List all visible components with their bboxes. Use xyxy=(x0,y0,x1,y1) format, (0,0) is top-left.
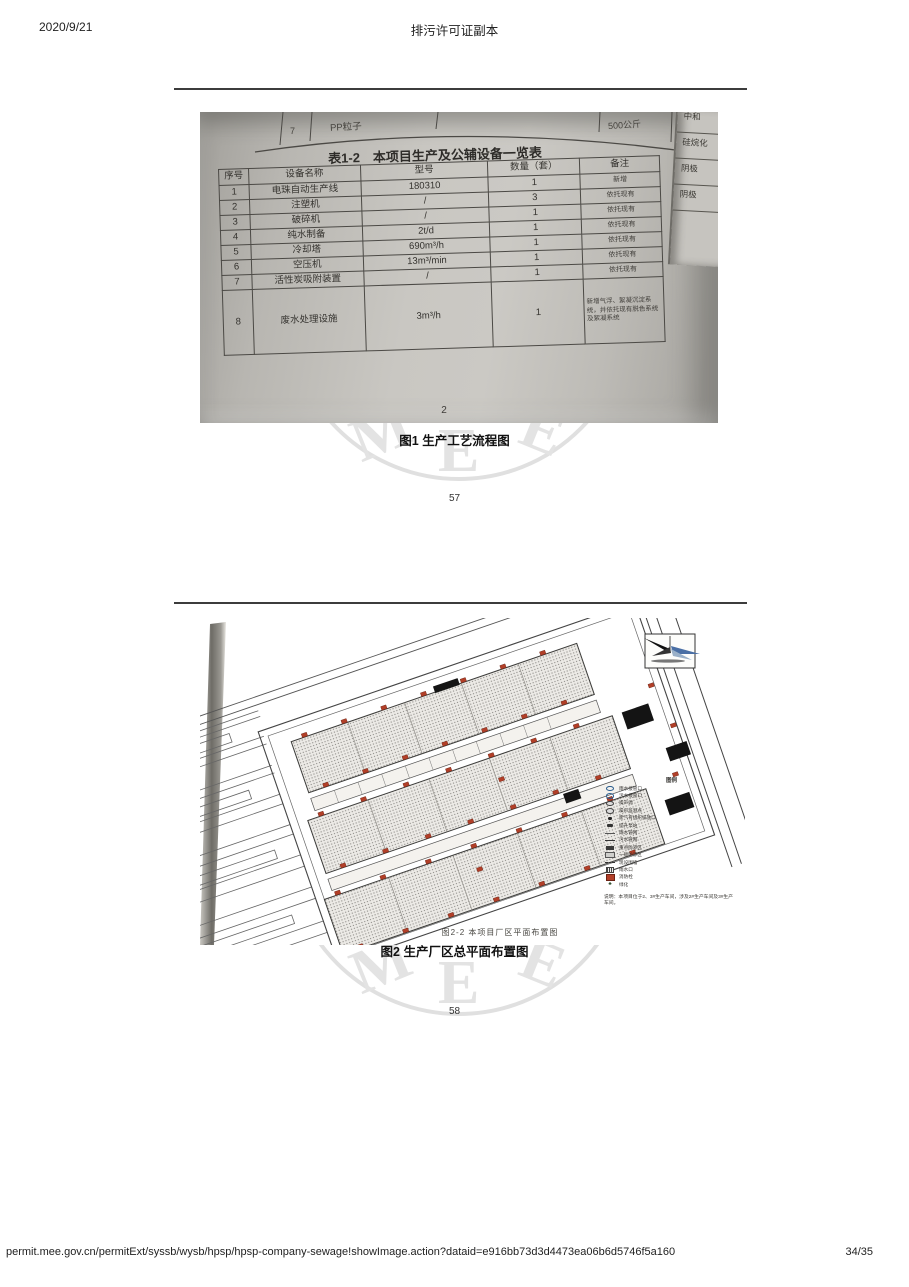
plan-legend-label: 废气有组织排放口 xyxy=(619,815,656,821)
plan-legend-item: 雨水管网 xyxy=(604,829,739,836)
adjacent-page-fragment: 硅烷化 xyxy=(675,133,718,162)
plan-legend-label: 雨水口 xyxy=(619,867,633,873)
plan-legend-title: 图例 xyxy=(604,776,739,784)
print-preview-page: { "header": { "date": "2020/9/21", "titl… xyxy=(0,0,909,1287)
plan-legend-label: 提升泵站 xyxy=(619,823,637,829)
plan-legend-item: 污水管网 xyxy=(604,837,739,844)
figure2-caption: 图2 生产厂区总平面布置图 xyxy=(0,941,909,960)
equipment-table-cell: 6 xyxy=(221,259,251,275)
section-divider-1 xyxy=(174,88,747,90)
partial-row-value: 500公斤 xyxy=(608,117,642,132)
plan-legend-label: 污水管网 xyxy=(619,837,637,843)
photographed-page-number: 2 xyxy=(200,405,688,416)
footer-page-indicator: 34/35 xyxy=(845,1246,873,1258)
figure1-photo: 7 PP粒子 500公斤 中和 硅烷化 阴极 阴极 表1-2 本项目生产及公辅设… xyxy=(200,112,718,423)
plan-legend-symbol xyxy=(604,793,616,799)
equipment-table-cell: 3m³/h xyxy=(364,282,494,351)
plan-legend-item: 重点防渗区 xyxy=(604,844,739,851)
equipment-table-cell: 废水处理设施 xyxy=(252,286,366,354)
plan-legend-item: 废气有组织排放口 xyxy=(604,815,739,822)
equipment-table-cell: 5 xyxy=(221,245,251,261)
plan-legend-symbol xyxy=(604,801,616,807)
equipment-table-cell: 7 xyxy=(222,274,252,290)
figure1-caption: 图1 生产工艺流程图 xyxy=(0,430,909,449)
equipment-table-cell: 2 xyxy=(219,200,249,216)
plan-legend-item: 雨水口 xyxy=(604,866,739,873)
plan-legend-symbol xyxy=(604,852,616,858)
figure2-photo: 图例 雨水接管口污水接管口噪声源噪声监测点废气有组织排放口提升泵站雨水管网污水管… xyxy=(200,618,745,945)
equipment-table-cell: 3 xyxy=(220,215,250,231)
plan-note: 说明：本项目位于2、3#生产车间，涉及2#生产车间及3#生产车间。 xyxy=(604,895,736,908)
plan-legend-label: 现设围墙 xyxy=(619,860,637,866)
equipment-table-cell: 1 xyxy=(492,279,586,347)
plan-legend-symbol xyxy=(604,817,616,821)
plan-legend-label: 雨水接管口 xyxy=(619,786,642,792)
plan-legend-label: 消防栓 xyxy=(619,874,633,880)
plan-legend-label: 绿化 xyxy=(619,882,628,888)
plan-legend-symbol: ♣ xyxy=(604,882,616,887)
plan-legend-symbol xyxy=(604,874,616,881)
plan-legend-symbol xyxy=(604,867,616,873)
north-compass-icon xyxy=(644,634,700,668)
plan-legend-symbol xyxy=(604,786,616,792)
equipment-table-header: 序号 xyxy=(219,169,249,186)
plan-legend-label: 一般防渗区 xyxy=(619,852,642,858)
plan-legend-label: 噪声源 xyxy=(619,800,633,806)
equipment-table-cell: 4 xyxy=(220,230,250,246)
plan-legend-symbol xyxy=(604,862,616,863)
plan-legend-item: 噪声源 xyxy=(604,800,739,807)
figure2-page-number: 58 xyxy=(0,1006,909,1017)
plan-legend-label: 污水接管口 xyxy=(619,793,642,799)
adjacent-page-fragment: 阴极 xyxy=(674,159,718,188)
partial-row-no: 7 xyxy=(290,126,295,136)
equipment-table-cell: 8 xyxy=(222,289,254,355)
adjacent-page-strip: 中和 硅烷化 阴极 阴极 xyxy=(668,112,718,268)
plan-legend-label: 雨水管网 xyxy=(619,830,637,836)
partial-row-name: PP粒子 xyxy=(330,118,362,134)
plan-legend-label: 噪声监测点 xyxy=(619,808,642,814)
plan-legend-symbol xyxy=(604,808,616,814)
plan-legend-symbol xyxy=(604,846,616,850)
plan-legend-symbol xyxy=(604,833,616,834)
plan-legend-item: 现设围墙 xyxy=(604,859,739,866)
plan-legend-item: 一般防渗区 xyxy=(604,852,739,859)
plan-legend: 图例 雨水接管口污水接管口噪声源噪声监测点废气有组织排放口提升泵站雨水管网污水管… xyxy=(604,776,739,888)
plan-legend-item: 提升泵站 xyxy=(604,822,739,829)
equipment-table-cell: 新增气浮、絮凝沉淀系统，并依托现有脱色系统及絮凝系统 xyxy=(583,277,665,344)
section-divider-2 xyxy=(174,602,747,604)
mee-watermark-letter: E xyxy=(438,416,479,487)
plan-legend-item: 雨水接管口 xyxy=(604,785,739,792)
equipment-table-cell: 1 xyxy=(219,185,249,201)
plan-legend-item: 噪声监测点 xyxy=(604,807,739,814)
plan-legend-item: 消防栓 xyxy=(604,874,739,881)
adjacent-page-fragment: 阴极 xyxy=(673,184,718,213)
equipment-table-row: 8废水处理设施3m³/h1新增气浮、絮凝沉淀系统，并依托现有脱色系统及絮凝系统 xyxy=(222,277,665,356)
plan-internal-caption: 图2-2 本项目厂区平面布置图 xyxy=(320,927,680,938)
book-edge xyxy=(200,622,226,945)
plan-legend-symbol xyxy=(604,840,616,841)
plan-legend-label: 重点防渗区 xyxy=(619,845,642,851)
equipment-table: 序号设备名称型号数量（套）备注 1电珠自动生产线1803101新增2注塑机/3依… xyxy=(218,155,666,356)
footer-url: permit.mee.gov.cn/permitExt/syssb/wysb/h… xyxy=(6,1246,675,1258)
plan-legend-item: 污水接管口 xyxy=(604,792,739,799)
plan-legend-item: ♣绿化 xyxy=(604,881,739,888)
plan-legend-symbol xyxy=(604,824,616,827)
header-title: 排污许可证副本 xyxy=(0,20,909,39)
figure1-page-number: 57 xyxy=(0,493,909,504)
